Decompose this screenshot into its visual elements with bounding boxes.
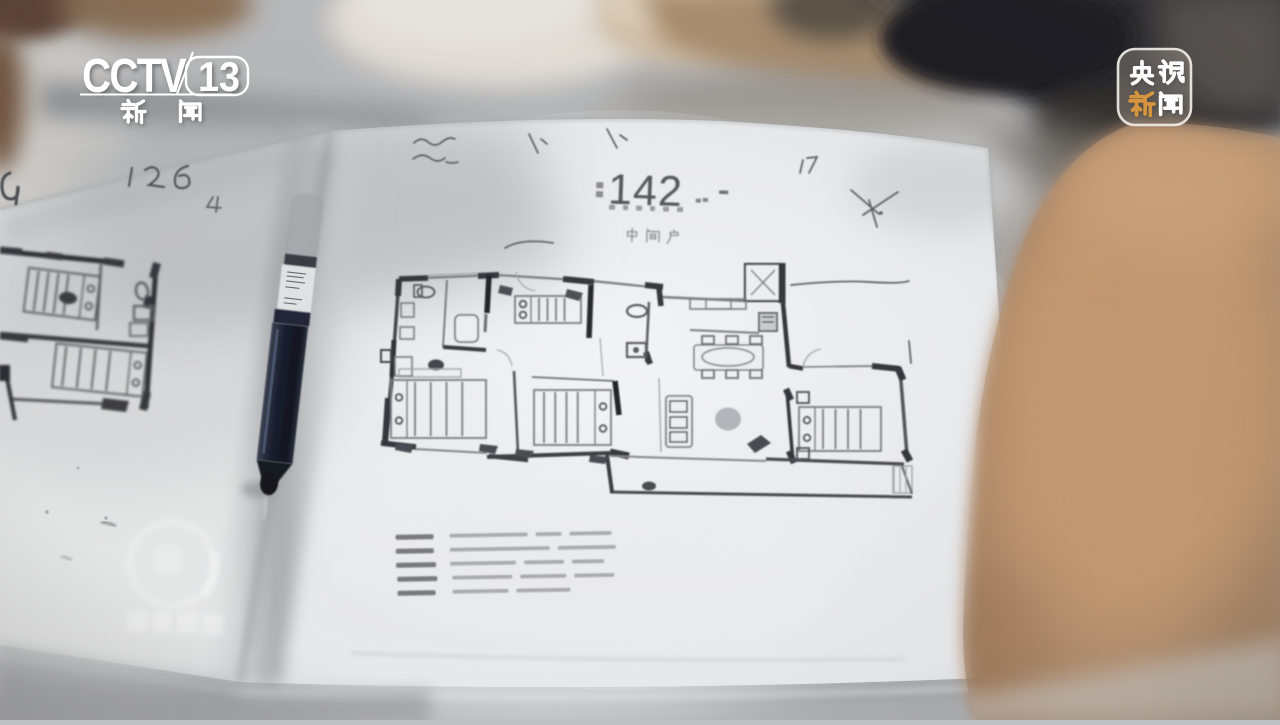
svg-text:13: 13 [198,53,240,100]
